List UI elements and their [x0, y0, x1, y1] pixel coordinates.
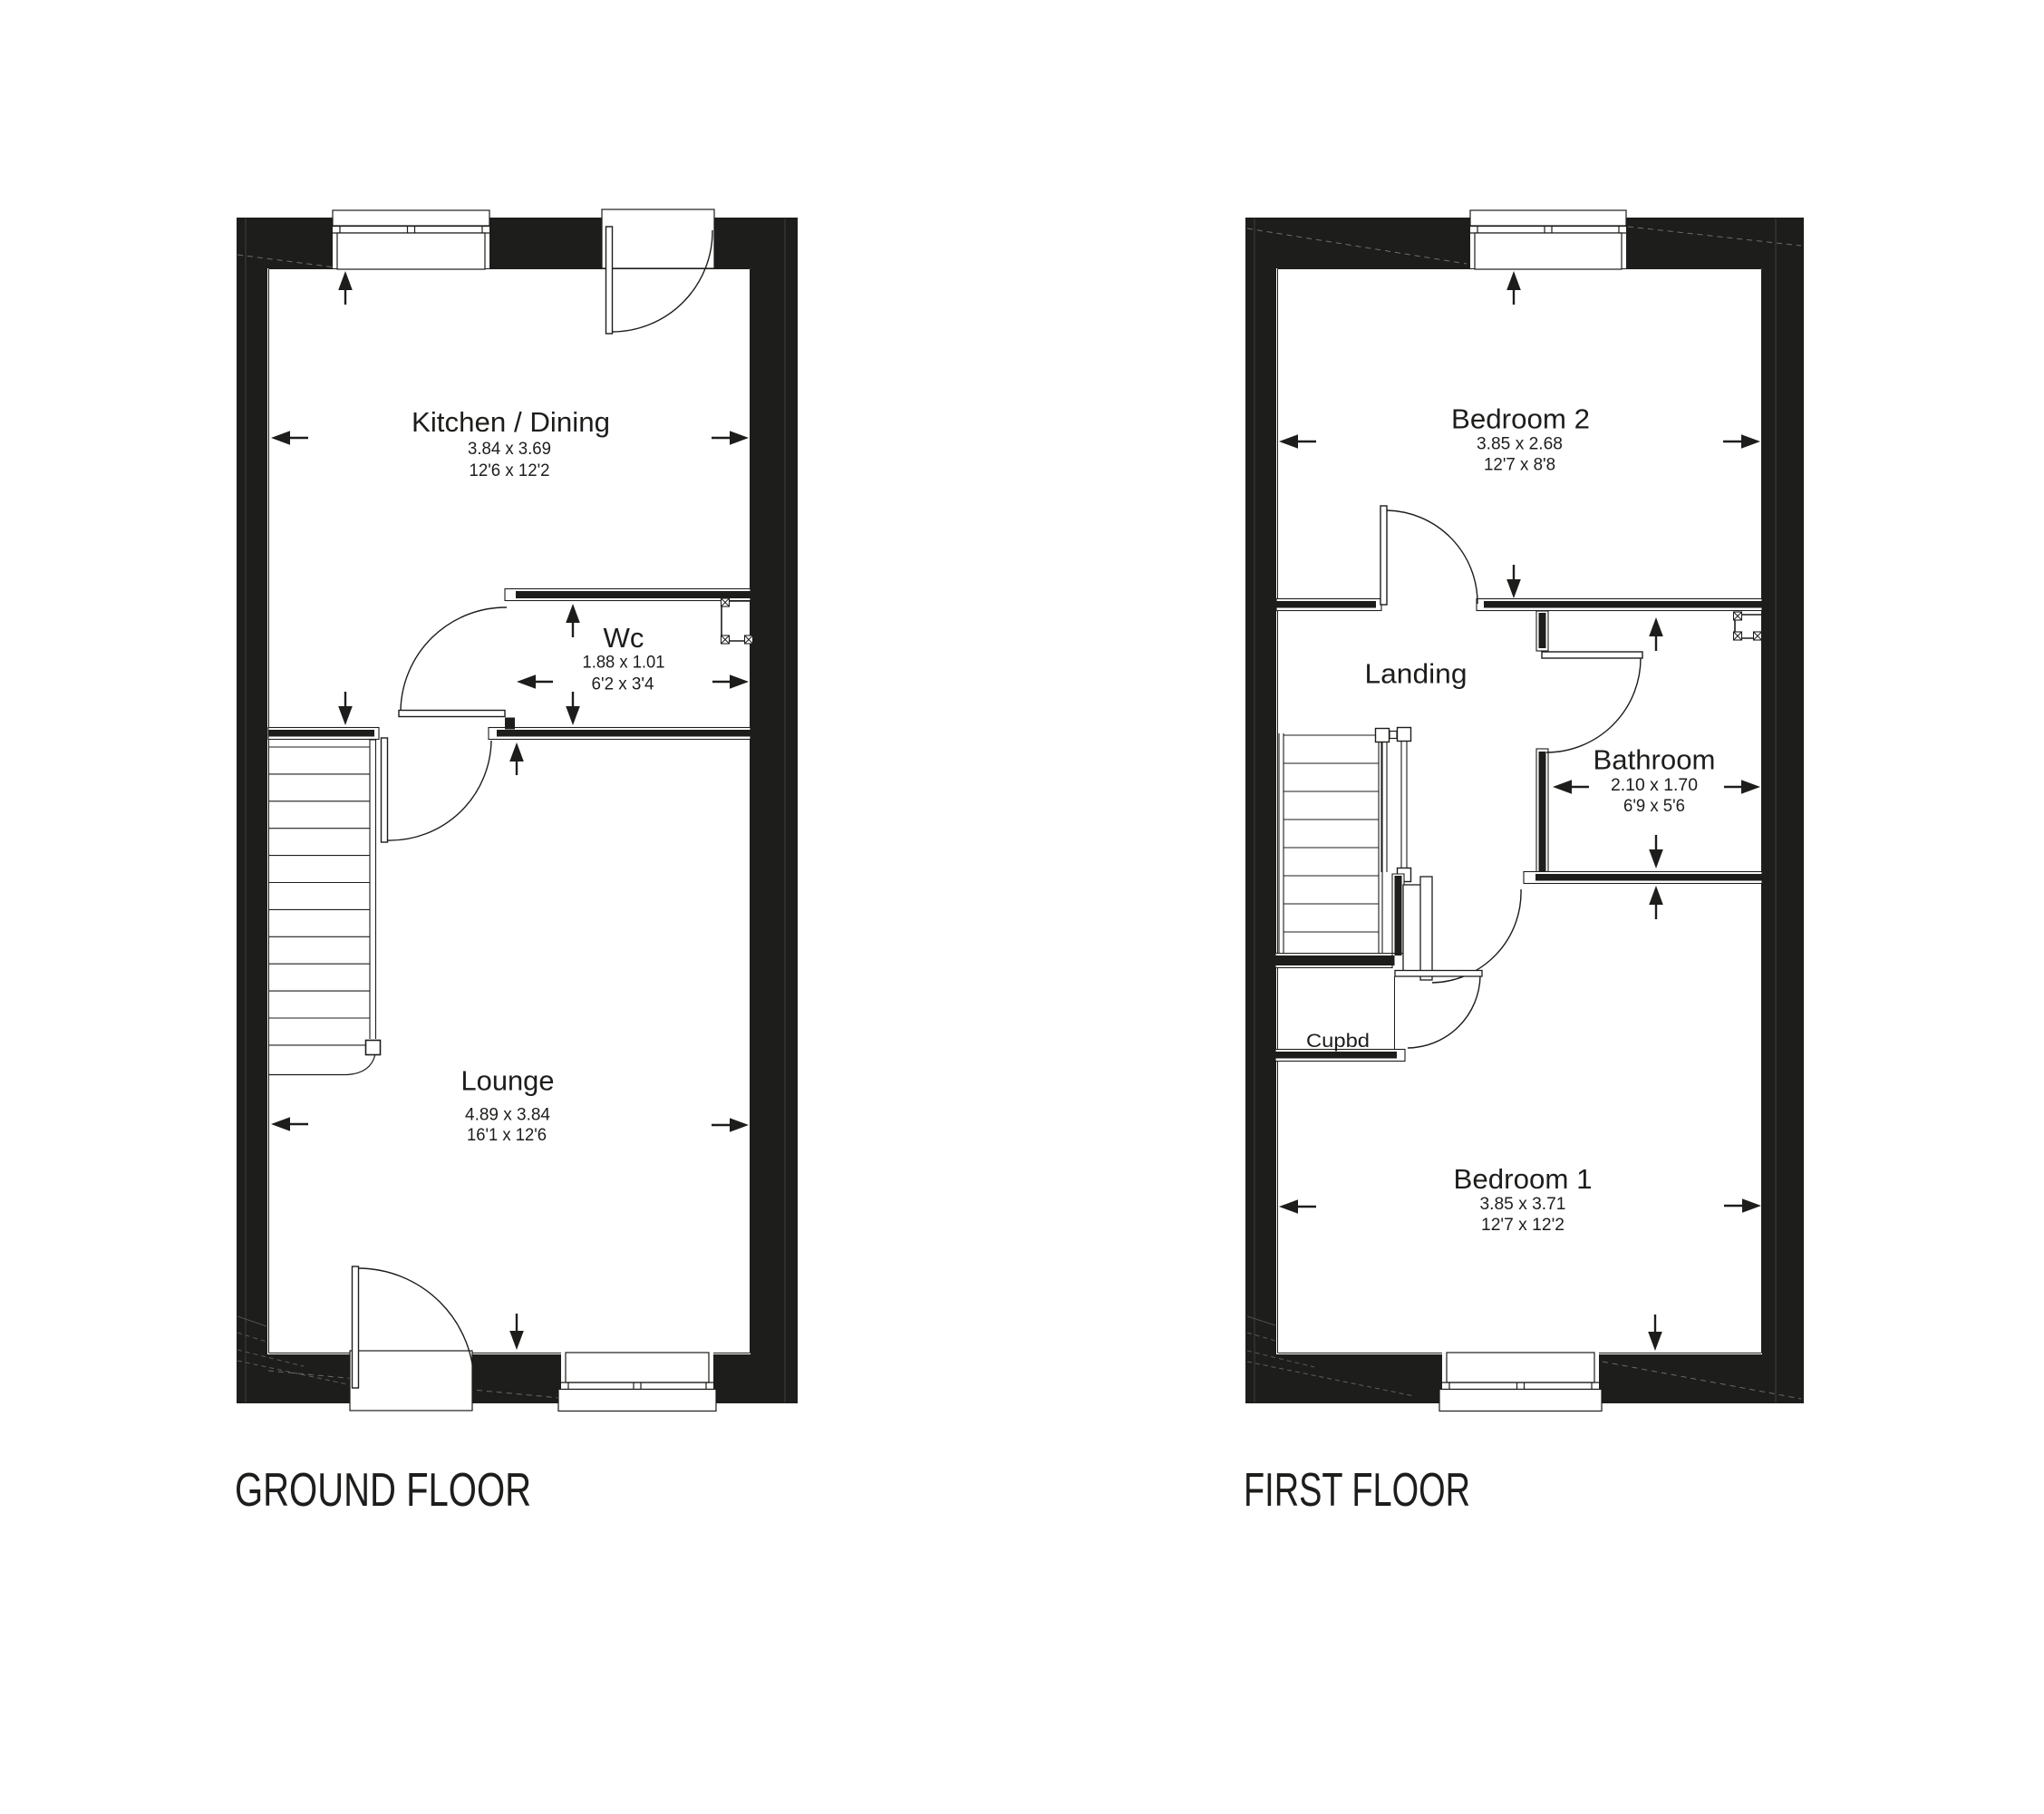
svg-text:1.88 x 1.01: 1.88 x 1.01: [583, 654, 665, 673]
svg-text:12'6 x 12'2: 12'6 x 12'2: [470, 461, 550, 480]
svg-text:3.84 x 3.69: 3.84 x 3.69: [468, 440, 551, 459]
svg-text:12'7 x 8'8: 12'7 x 8'8: [1484, 456, 1555, 475]
svg-text:4.89 x 3.84: 4.89 x 3.84: [465, 1106, 550, 1125]
svg-text:16'1 x 12'6: 16'1 x 12'6: [467, 1126, 547, 1145]
svg-text:Lounge: Lounge: [461, 1065, 555, 1097]
svg-text:3.85 x 2.68: 3.85 x 2.68: [1477, 435, 1563, 454]
svg-text:3.85 x 3.71: 3.85 x 3.71: [1480, 1195, 1566, 1214]
svg-text:GROUND FLOOR: GROUND FLOOR: [235, 1464, 531, 1517]
svg-text:Landing: Landing: [1365, 658, 1468, 690]
svg-text:Bedroom 1: Bedroom 1: [1454, 1163, 1593, 1195]
svg-text:Cupbd: Cupbd: [1306, 1031, 1370, 1052]
svg-text:2.10 x 1.70: 2.10 x 1.70: [1611, 776, 1698, 795]
svg-text:6'9 x 5'6: 6'9 x 5'6: [1623, 797, 1685, 816]
svg-text:Kitchen / Dining: Kitchen / Dining: [412, 406, 610, 438]
svg-text:Bathroom: Bathroom: [1594, 744, 1716, 776]
svg-text:6'2 x 3'4: 6'2 x 3'4: [592, 675, 654, 694]
svg-text:Bedroom 2: Bedroom 2: [1451, 403, 1590, 435]
svg-text:Wc: Wc: [604, 622, 644, 654]
svg-text:12'7 x 12'2: 12'7 x 12'2: [1481, 1216, 1564, 1235]
svg-text:FIRST FLOOR: FIRST FLOOR: [1244, 1464, 1470, 1517]
